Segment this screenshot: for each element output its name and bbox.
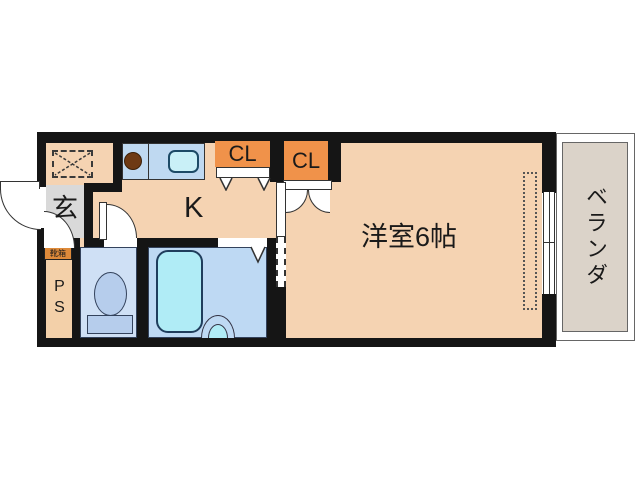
kitchen-sink	[168, 150, 199, 173]
shoe-box-label: 靴箱	[50, 250, 66, 258]
sliding-door-track	[276, 237, 286, 287]
toilet-bowl	[94, 272, 127, 316]
sliding-door-panel	[276, 182, 286, 237]
closet-right-label: CL	[292, 150, 320, 172]
closet-left-door-swing-icon	[257, 177, 271, 191]
pipe-space: PS	[46, 260, 72, 338]
closet-left-label: CL	[228, 143, 256, 165]
closet-right-box: CL	[284, 141, 328, 180]
wall-partition-lower	[271, 287, 286, 338]
western-room-label: 洋室6帖	[361, 224, 457, 251]
pipe-space-label: PS	[51, 278, 67, 320]
wall-right-lower	[542, 294, 556, 341]
bathroom-door-swing-icon	[250, 246, 267, 264]
balcony-window	[543, 192, 555, 294]
entrance-label: 玄	[52, 195, 78, 221]
wall-between-closets	[270, 141, 284, 182]
washing-machine-x-icon	[54, 152, 91, 176]
dotted-outline	[523, 172, 537, 310]
toilet-tank	[87, 315, 133, 334]
balcony-label: ベランダ	[584, 185, 606, 289]
closet-left-box: CL	[215, 141, 270, 167]
window-center-rail	[549, 192, 550, 294]
floor-plan: CL CL 靴箱 PS	[0, 0, 640, 480]
wall-ps-right	[72, 238, 80, 338]
kitchen-label: K	[184, 194, 203, 223]
shoe-box: 靴箱	[44, 247, 72, 260]
counter-divider	[148, 144, 149, 179]
wall-toilet-top-right	[137, 238, 218, 247]
washing-machine-space	[52, 150, 93, 178]
wall-left-upper	[37, 132, 46, 187]
balcony-floor: ベランダ	[562, 142, 628, 332]
wall-toilet-bath-divider	[137, 247, 148, 338]
wall-right-upper	[542, 135, 556, 193]
window-meeting-tick	[544, 242, 554, 243]
closet-left-door-swing-icon	[219, 177, 233, 191]
bathtub	[156, 250, 203, 333]
closet-right-door	[283, 180, 332, 190]
toilet-door-leaf	[99, 202, 107, 240]
toilet-door-opening	[104, 238, 137, 247]
wall-closet-right-stub	[328, 141, 341, 182]
entrance-door-arc	[0, 189, 41, 230]
stove-burner-icon	[124, 152, 142, 170]
wall-bottom	[37, 338, 556, 347]
